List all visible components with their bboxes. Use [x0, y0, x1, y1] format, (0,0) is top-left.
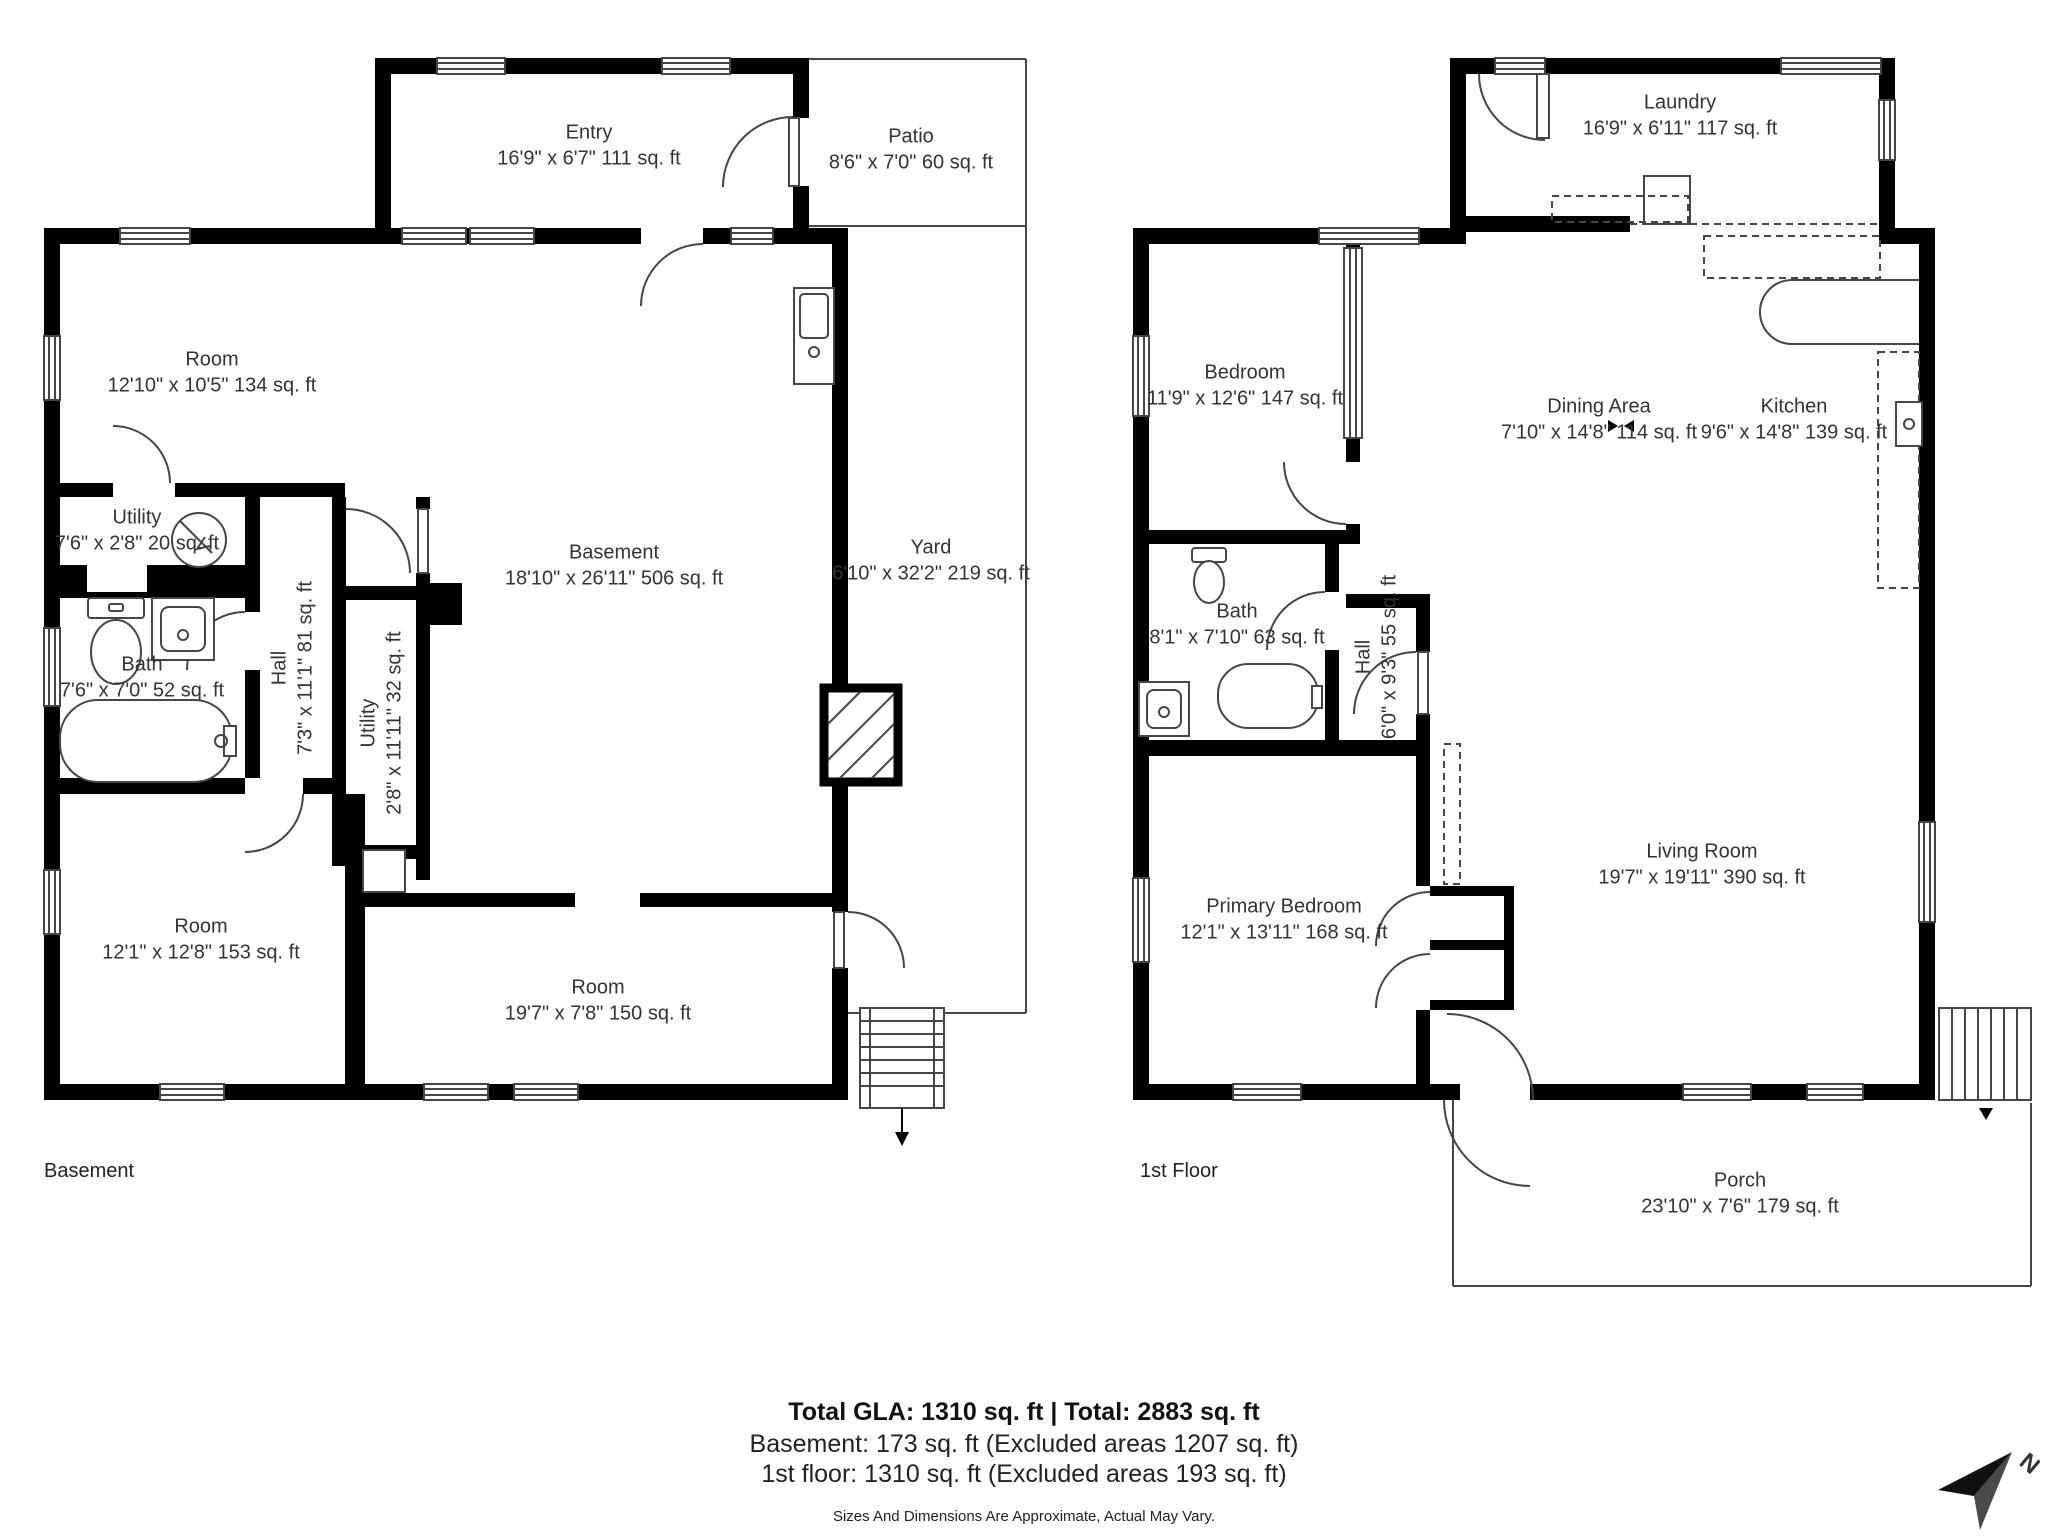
room-name: Kitchen — [1701, 394, 1887, 420]
room-dims: 11'9" x 12'6" 147 sq. ft — [1147, 386, 1343, 412]
room-name: Room — [108, 347, 317, 373]
room-dims: 23'10" x 7'6" 179 sq. ft — [1641, 1194, 1839, 1220]
laundry-sink-icon — [794, 288, 834, 384]
built-in-shelves — [1444, 744, 1460, 884]
washer-icon — [1552, 176, 1690, 224]
room-dims: 18'10" x 26'11" 506 sq. ft — [505, 566, 723, 592]
basement-area-line: Basement: 173 sq. ft (Excluded areas 120… — [0, 1430, 2048, 1459]
room-label-living-room: Living Room 19'7" x 19'11" 390 sq. ft — [1598, 839, 1805, 892]
first-floor-fixtures — [1139, 176, 1922, 884]
room-name: Dining Area — [1501, 394, 1697, 420]
room-name: Room — [102, 914, 300, 940]
room-label-bedroom: Bedroom 11'9" x 12'6" 147 sq. ft — [1147, 360, 1343, 413]
stairs-down-arrow-icon — [895, 1132, 909, 1146]
floorplan-canvas: Entry 16'9" x 6'7" 111 sq. ft Patio 8'6"… — [0, 0, 2048, 1536]
room-name: Porch — [1641, 1168, 1839, 1194]
room-label-porch: Porch 23'10" x 7'6" 179 sq. ft — [1641, 1168, 1839, 1221]
room-dims: 16'9" x 6'7" 111 sq. ft — [497, 146, 680, 172]
room-name: Utility — [55, 505, 219, 531]
bathtub-icon — [1218, 664, 1322, 728]
room-label-room-bottom-left: Room 12'1" x 12'8" 153 sq. ft — [102, 914, 300, 967]
disclaimer-text: Sizes And Dimensions Are Approximate, Ac… — [0, 1508, 2048, 1525]
room-dims: 6'10" x 32'2" 219 sq. ft — [832, 561, 1030, 587]
room-dims: 12'1" x 13'11" 168 sq. ft — [1180, 920, 1387, 946]
kitchen-sink-icon — [1896, 402, 1922, 446]
room-label-first-bath: Bath 8'1" x 7'10" 63 sq. ft — [1149, 599, 1324, 652]
room-name: Bath — [1149, 599, 1324, 625]
room-name: Yard — [832, 535, 1030, 561]
room-dims: 2'8" x 11'11" 32 sq. ft — [382, 631, 408, 814]
room-dims: 12'1" x 12'8" 153 sq. ft — [102, 940, 300, 966]
room-name: Patio — [829, 124, 993, 150]
room-name: Hall — [267, 581, 293, 755]
room-label-patio: Patio 8'6" x 7'0" 60 sq. ft — [829, 124, 993, 177]
room-label-entry: Entry 16'9" x 6'7" 111 sq. ft — [497, 120, 680, 173]
compass-icon: N — [1930, 1438, 2040, 1534]
room-dims: 19'7" x 7'8" 150 sq. ft — [505, 1001, 691, 1027]
room-name: Bedroom — [1147, 360, 1343, 386]
room-label-basement-hall: Hall 7'3" x 11'1" 81 sq. ft — [267, 581, 320, 755]
room-dims: 16'9" x 6'11" 117 sq. ft — [1583, 116, 1778, 142]
room-name: Primary Bedroom — [1180, 894, 1387, 920]
room-label-utility-small: Utility 7'6" x 2'8" 20 sq. ft — [55, 505, 219, 558]
room-label-basement-room: Basement 18'10" x 26'11" 506 sq. ft — [505, 540, 723, 593]
room-dims: 8'1" x 7'10" 63 sq. ft — [1149, 625, 1324, 651]
room-dims: 7'6" x 7'0" 52 sq. ft — [60, 678, 224, 704]
room-name: Hall — [1351, 575, 1377, 739]
room-dims: 7'10" x 14'8" 114 sq. ft — [1501, 420, 1697, 446]
total-gla-line: Total GLA: 1310 sq. ft | Total: 2883 sq.… — [0, 1398, 2048, 1427]
room-name: Basement — [505, 540, 723, 566]
room-dims: 7'3" x 11'1" 81 sq. ft — [293, 581, 319, 755]
room-label-first-hall: Hall 6'0" x 9'3" 55 sq. ft — [1351, 575, 1404, 739]
room-label-dining-area: Dining Area 7'10" x 14'8" 114 sq. ft — [1501, 394, 1697, 447]
chimney-hatch — [824, 688, 898, 782]
room-label-room-top-left: Room 12'10" x 10'5" 134 sq. ft — [108, 347, 317, 400]
room-name: Living Room — [1598, 839, 1805, 865]
room-dims: 19'7" x 19'11" 390 sq. ft — [1598, 865, 1805, 891]
room-label-yard: Yard 6'10" x 32'2" 219 sq. ft — [832, 535, 1030, 588]
floor-plan-graphic — [0, 0, 2048, 1536]
first-floor-label: 1st Floor — [1140, 1160, 1218, 1183]
room-dims: 12'10" x 10'5" 134 sq. ft — [108, 373, 317, 399]
first-floor-area-line: 1st floor: 1310 sq. ft (Excluded areas 1… — [0, 1460, 2048, 1489]
room-name: Room — [505, 975, 691, 1001]
room-label-basement-bath: Bath 7'6" x 7'0" 52 sq. ft — [60, 652, 224, 705]
porch-outline — [1453, 1008, 2031, 1286]
room-dims: 9'6" x 14'8" 139 sq. ft — [1701, 420, 1887, 446]
toilet-icon — [1192, 548, 1226, 603]
bathtub-icon — [60, 700, 236, 782]
room-name: Bath — [60, 652, 224, 678]
room-label-kitchen: Kitchen 9'6" x 14'8" 139 sq. ft — [1701, 394, 1887, 447]
room-label-room-bottom-center: Room 19'7" x 7'8" 150 sq. ft — [505, 975, 691, 1028]
room-dims: 8'6" x 7'0" 60 sq. ft — [829, 150, 993, 176]
room-label-utility-tall: Utility 2'8" x 11'11" 32 sq. ft — [356, 631, 409, 814]
room-dims: 6'0" x 9'3" 55 sq. ft — [1377, 575, 1403, 739]
bedroom-closet-slider — [1344, 248, 1362, 438]
first-floor-stairs — [1939, 1008, 2031, 1120]
room-dims: 7'6" x 2'8" 20 sq. ft — [55, 531, 219, 557]
room-name: Utility — [356, 631, 382, 814]
basement-stairs — [860, 1008, 944, 1146]
room-label-primary-bedroom: Primary Bedroom 12'1" x 13'11" 168 sq. f… — [1180, 894, 1387, 947]
utility-sink-icon — [363, 850, 405, 892]
compass-north-label: N — [2014, 1448, 2040, 1480]
stairs-down-arrow-icon — [1979, 1108, 1993, 1120]
room-name: Laundry — [1583, 90, 1778, 116]
basement-floor-label: Basement — [44, 1160, 134, 1183]
room-name: Entry — [497, 120, 680, 146]
vanity-sink-icon — [1139, 682, 1189, 736]
room-label-laundry: Laundry 16'9" x 6'11" 117 sq. ft — [1583, 90, 1778, 143]
